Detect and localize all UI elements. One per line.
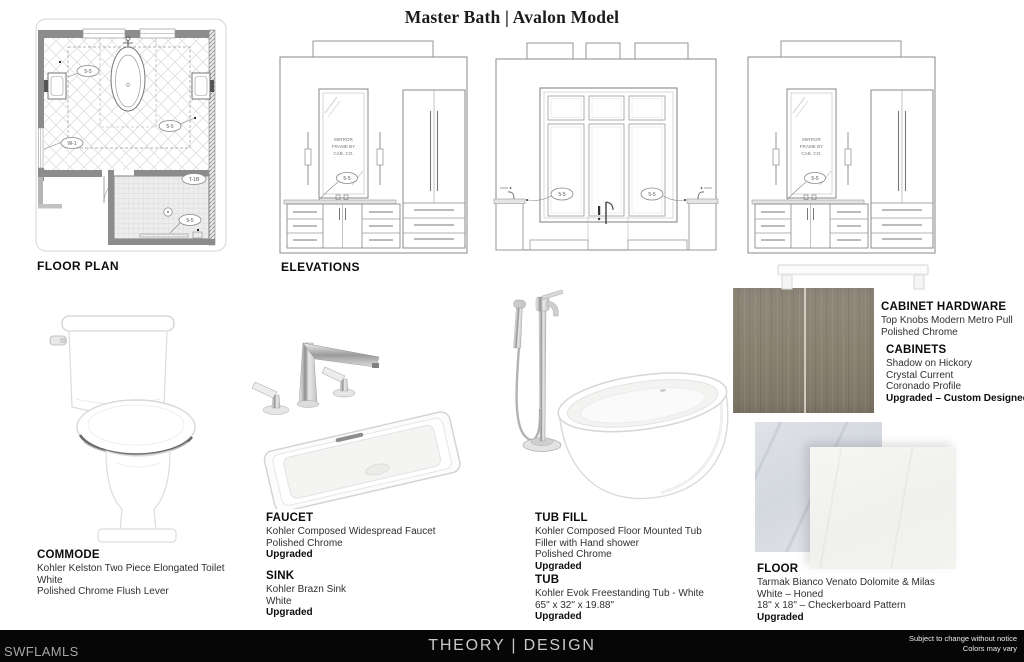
plan-tag-text: W-1 bbox=[67, 141, 76, 147]
tub-image bbox=[549, 360, 747, 524]
spec-line: Crystal Current bbox=[886, 370, 1024, 382]
cabinets-spec: CABINETS Shadow on Hickory Crystal Curre… bbox=[886, 344, 1024, 404]
floor-plan-label: FLOOR PLAN bbox=[37, 259, 119, 273]
elevation-tag-55: 5-5 bbox=[551, 188, 573, 200]
spec-line-upgraded: Upgraded bbox=[757, 612, 935, 624]
plan-tag-55-b: 5-5 bbox=[159, 121, 181, 132]
commode-image bbox=[36, 303, 230, 545]
spec-line: Polished Chrome bbox=[881, 327, 1013, 339]
cabinet-hardware-heading: CABINET HARDWARE bbox=[881, 301, 1013, 314]
spec-line: Filler with Hand shower bbox=[535, 538, 702, 550]
plan-tag-text: 5-5 bbox=[811, 176, 818, 182]
plan-tag-text: T-1B bbox=[189, 177, 200, 183]
elevation-2-drawing: 5-5 5-5 bbox=[492, 40, 720, 252]
spec-line: 18" x 18" – Checkerboard Pattern bbox=[757, 600, 935, 612]
spec-line: Kohler Composed Widespread Faucet bbox=[266, 526, 436, 538]
commode-heading: COMMODE bbox=[37, 549, 225, 562]
tub-spec: TUB Kohler Evok Freestanding Tub - White… bbox=[535, 574, 704, 623]
disclaimer-line: Colors may vary bbox=[909, 644, 1017, 654]
spec-line: Coronado Profile bbox=[886, 381, 1024, 393]
spec-line: Shadow on Hickory bbox=[886, 358, 1024, 370]
cabinets-heading: CABINETS bbox=[886, 344, 1024, 357]
design-board: Master Bath | Avalon Model bbox=[0, 0, 1024, 662]
faucet-spec: FAUCET Kohler Composed Widespread Faucet… bbox=[266, 512, 436, 561]
faucet-sink-image bbox=[249, 331, 471, 509]
spec-line: Tarmak Bianco Venato Dolomite & Milas bbox=[757, 577, 935, 589]
sink-heading: SINK bbox=[266, 570, 346, 583]
mirror-note: MIRROR bbox=[334, 137, 353, 142]
spec-line: Kohler Kelston Two Piece Elongated Toile… bbox=[37, 563, 225, 575]
plan-tag-text: 5-5 bbox=[84, 69, 91, 75]
floor-plan-drawing: 5-5 5-5 W-1 T-1B 5-5 bbox=[28, 13, 230, 253]
plan-tag-55-a: 5-5 bbox=[77, 66, 99, 77]
plan-tag-t1b: T-1B bbox=[182, 174, 206, 185]
faucet-heading: FAUCET bbox=[266, 512, 436, 525]
floor-heading: FLOOR bbox=[757, 563, 935, 576]
cabinet-door-seam bbox=[804, 288, 806, 413]
spec-line: White – Honed bbox=[757, 589, 935, 601]
spec-line: Top Knobs Modern Metro Pull bbox=[881, 315, 1013, 327]
elevation-1-drawing: MIRROR FRAME BY CAB. CO. 5-5 bbox=[278, 37, 470, 255]
spec-line: 65" x 32" x 19.88" bbox=[535, 600, 704, 612]
spec-line: Polished Chrome Flush Lever bbox=[37, 586, 225, 598]
plan-tag-text: 5-5 bbox=[558, 192, 565, 198]
elevation-3-drawing: MIRROR FRAME BY CAB. CO. 5-5 bbox=[744, 37, 940, 255]
elevation-tag-55: 5-5 bbox=[805, 173, 826, 184]
plan-tag-text: 5-5 bbox=[166, 124, 173, 130]
cabinet-hardware-spec: CABINET HARDWARE Top Knobs Modern Metro … bbox=[881, 301, 1013, 338]
cabinet-pull-image bbox=[777, 263, 929, 290]
spec-line-upgraded: Upgraded bbox=[535, 561, 702, 573]
mirror-note: FRAME BY bbox=[332, 144, 355, 149]
elevations-label: ELEVATIONS bbox=[281, 260, 360, 274]
sink-spec: SINK Kohler Brazn Sink White Upgraded bbox=[266, 570, 346, 619]
tub-fill-heading: TUB FILL bbox=[535, 512, 702, 525]
tub-heading: TUB bbox=[535, 574, 704, 587]
plan-tag-w1: W-1 bbox=[61, 138, 83, 149]
spec-line: Kohler Brazn Sink bbox=[266, 584, 346, 596]
mirror-note: CAB. CO. bbox=[333, 151, 353, 156]
plan-tag-text: 5-5 bbox=[343, 176, 350, 182]
mirror-note: FRAME BY bbox=[800, 144, 823, 149]
plan-tag-55-c: 5-5 bbox=[179, 215, 201, 226]
plan-tag-text: 5-5 bbox=[186, 218, 193, 224]
plan-tag-text: 5-5 bbox=[648, 192, 655, 198]
spec-line: Polished Chrome bbox=[535, 549, 702, 561]
spec-line: Kohler Composed Floor Mounted Tub bbox=[535, 526, 702, 538]
hand-shower-hose bbox=[517, 347, 541, 440]
floor-tile-swatch-milas-white bbox=[810, 447, 956, 569]
hand-shower bbox=[511, 300, 526, 349]
mirror-note: MIRROR bbox=[802, 137, 821, 142]
cabinet-finish-swatch bbox=[733, 288, 874, 413]
sink-basin bbox=[263, 410, 462, 509]
floor-spec: FLOOR Tarmak Bianco Venato Dolomite & Mi… bbox=[757, 563, 935, 623]
spec-line-upgraded: Upgraded bbox=[535, 611, 704, 623]
mirror-note: CAB. CO. bbox=[801, 151, 821, 156]
elevation-tag-55: 5-5 bbox=[337, 173, 358, 184]
spec-line: White bbox=[37, 575, 225, 587]
footer-bar: SWFLAMLS THEORY | DESIGN Subject to chan… bbox=[0, 630, 1024, 662]
disclaimer-line: Subject to change without notice bbox=[909, 634, 1017, 644]
spec-line-upgraded: Upgraded – Custom Designed bbox=[886, 393, 1024, 405]
filler-handle bbox=[542, 290, 563, 300]
spec-line: White bbox=[266, 596, 346, 608]
spec-line: Polished Chrome bbox=[266, 538, 436, 550]
tub-filler-image bbox=[506, 287, 572, 459]
widespread-faucet bbox=[252, 343, 379, 415]
brand-theory-design: THEORY | DESIGN bbox=[0, 637, 1024, 655]
elevation-tag-55: 5-5 bbox=[641, 188, 663, 200]
commode-spec: COMMODE Kohler Kelston Two Piece Elongat… bbox=[37, 549, 225, 598]
spec-line: Kohler Evok Freestanding Tub - White bbox=[535, 588, 704, 600]
spec-line-upgraded: Upgraded bbox=[266, 549, 436, 561]
tub-fill-spec: TUB FILL Kohler Composed Floor Mounted T… bbox=[535, 512, 702, 572]
disclaimer-text: Subject to change without notice Colors … bbox=[909, 634, 1017, 653]
spec-line-upgraded: Upgraded bbox=[266, 607, 346, 619]
